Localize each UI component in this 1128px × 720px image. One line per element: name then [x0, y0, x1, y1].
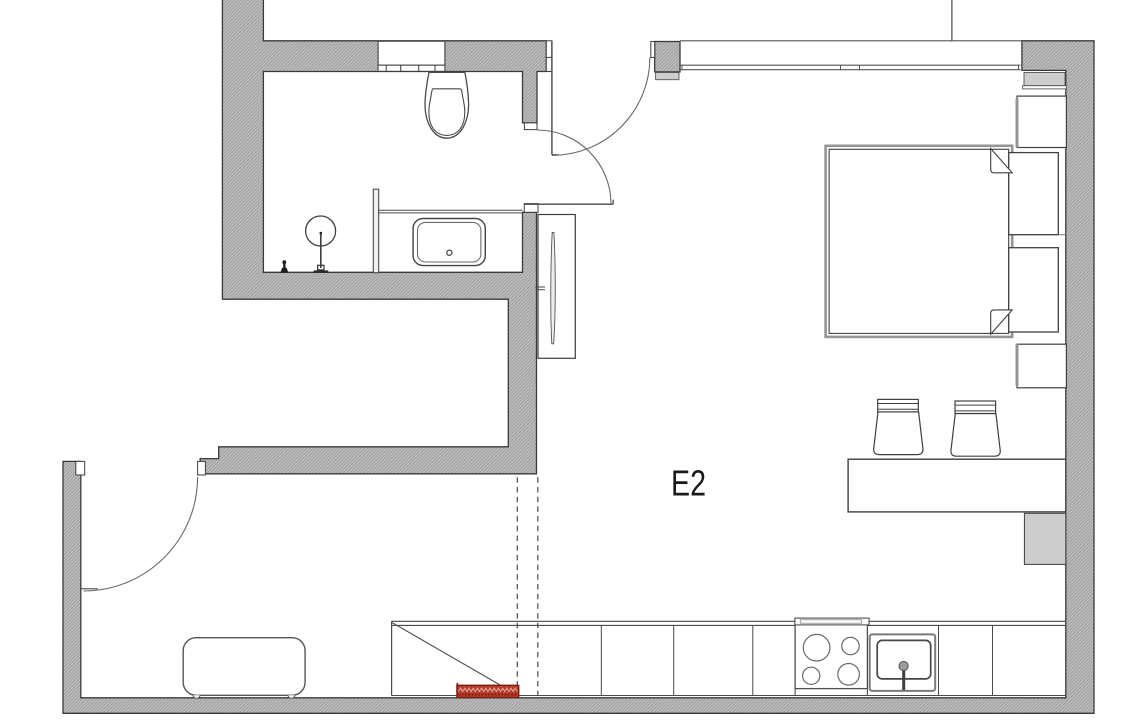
svg-text:E2: E2: [671, 463, 706, 504]
